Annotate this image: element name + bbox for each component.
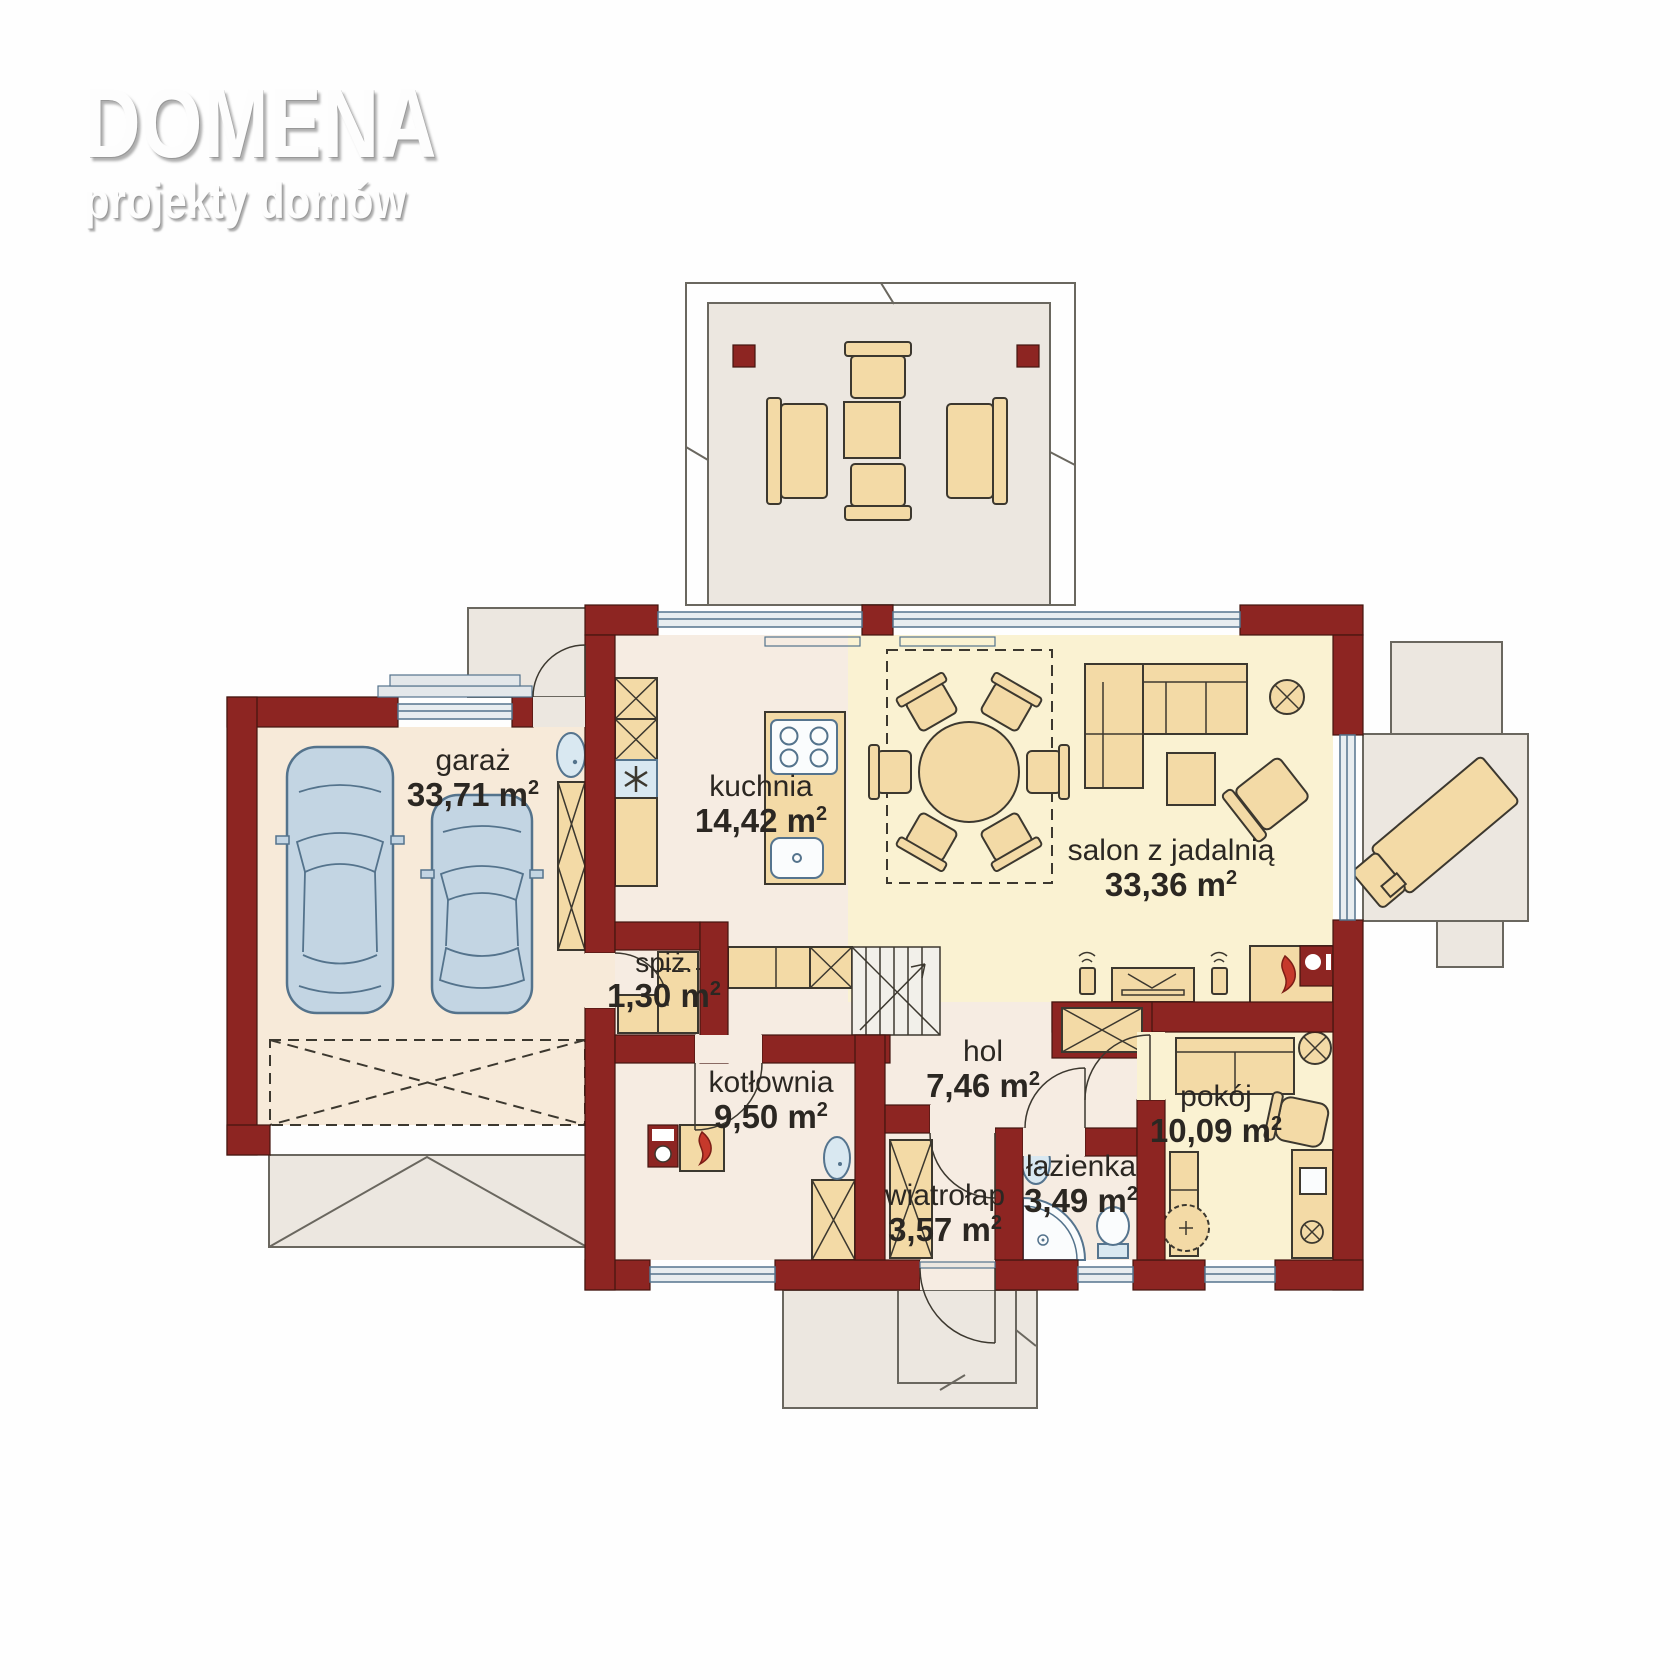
dining-table (919, 722, 1019, 822)
tv-cabinet (1112, 968, 1194, 1002)
closet-cabinet (1062, 1008, 1142, 1052)
car-small (421, 795, 543, 1013)
brand-subtitle: projekty domów (84, 176, 455, 226)
garage-cabinets (557, 733, 585, 950)
desk (1292, 1150, 1333, 1258)
vestibule-wardrobe (890, 1140, 932, 1258)
entrance-porch (783, 1290, 1037, 1408)
terrace-post (1017, 345, 1039, 367)
top-terrace (686, 283, 1075, 605)
stove-icon (771, 720, 837, 774)
washbasin-icon (824, 1137, 850, 1179)
kitchen-island (765, 712, 845, 884)
patio-table (844, 402, 900, 458)
kitchen-counter (615, 798, 657, 886)
coffee-table (1167, 753, 1215, 805)
car-large (276, 747, 404, 1013)
sink-icon (771, 838, 823, 878)
speaker-icon (1080, 968, 1095, 994)
fireplace (1250, 946, 1333, 1004)
kitchen-cabinets (615, 678, 657, 886)
understair-cabinets (728, 947, 852, 988)
speaker-icon (1212, 968, 1227, 994)
monitor-icon (1300, 1168, 1326, 1194)
brand-logo: DOMENA projekty domów (84, 74, 526, 226)
garage-washbasin-icon (557, 733, 585, 777)
toilet-icon (1098, 1244, 1128, 1258)
side-terrace (1348, 642, 1528, 967)
garage-canopy (269, 1155, 587, 1247)
brand-title: DOMENA (84, 74, 437, 172)
terrace-post (733, 345, 755, 367)
stairs (852, 947, 940, 1035)
floor-plan-drawing (0, 0, 1680, 1680)
floorplan-page: DOMENA projekty domów (0, 0, 1680, 1680)
